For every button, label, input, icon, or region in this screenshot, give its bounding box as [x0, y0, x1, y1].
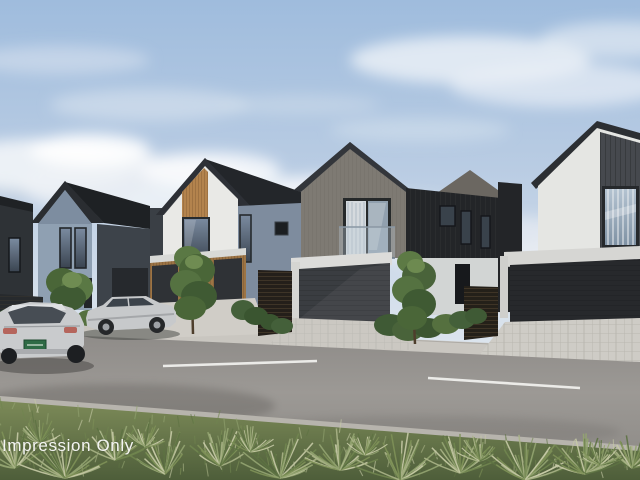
- grass-blade: [222, 466, 223, 471]
- car-wheel-left: [1, 348, 17, 364]
- wing-window-2: [461, 211, 471, 244]
- house-b-window-left: [60, 228, 71, 268]
- wing-window-3: [481, 216, 490, 248]
- house-d-balcony-window: [339, 198, 395, 259]
- house-e-tall-window: [602, 186, 639, 248]
- house-a-window: [9, 238, 20, 272]
- wing-window-1: [440, 206, 455, 226]
- tail-light-left: [3, 328, 17, 334]
- car-wheel-right: [67, 345, 85, 363]
- garage-door-c: [214, 258, 242, 302]
- artist-impression-render: Impression Only: [0, 0, 640, 480]
- street-scene: [0, 0, 640, 480]
- house-c-window-small: [275, 222, 288, 235]
- grass-blade: [180, 468, 181, 475]
- house-d-pillar: [291, 262, 300, 320]
- watermark-text: Impression Only: [2, 436, 134, 456]
- house-e-pillar: [500, 256, 508, 318]
- car-shadow: [80, 328, 180, 340]
- house-b-window-right: [75, 228, 86, 268]
- tail-light-right: [64, 327, 77, 333]
